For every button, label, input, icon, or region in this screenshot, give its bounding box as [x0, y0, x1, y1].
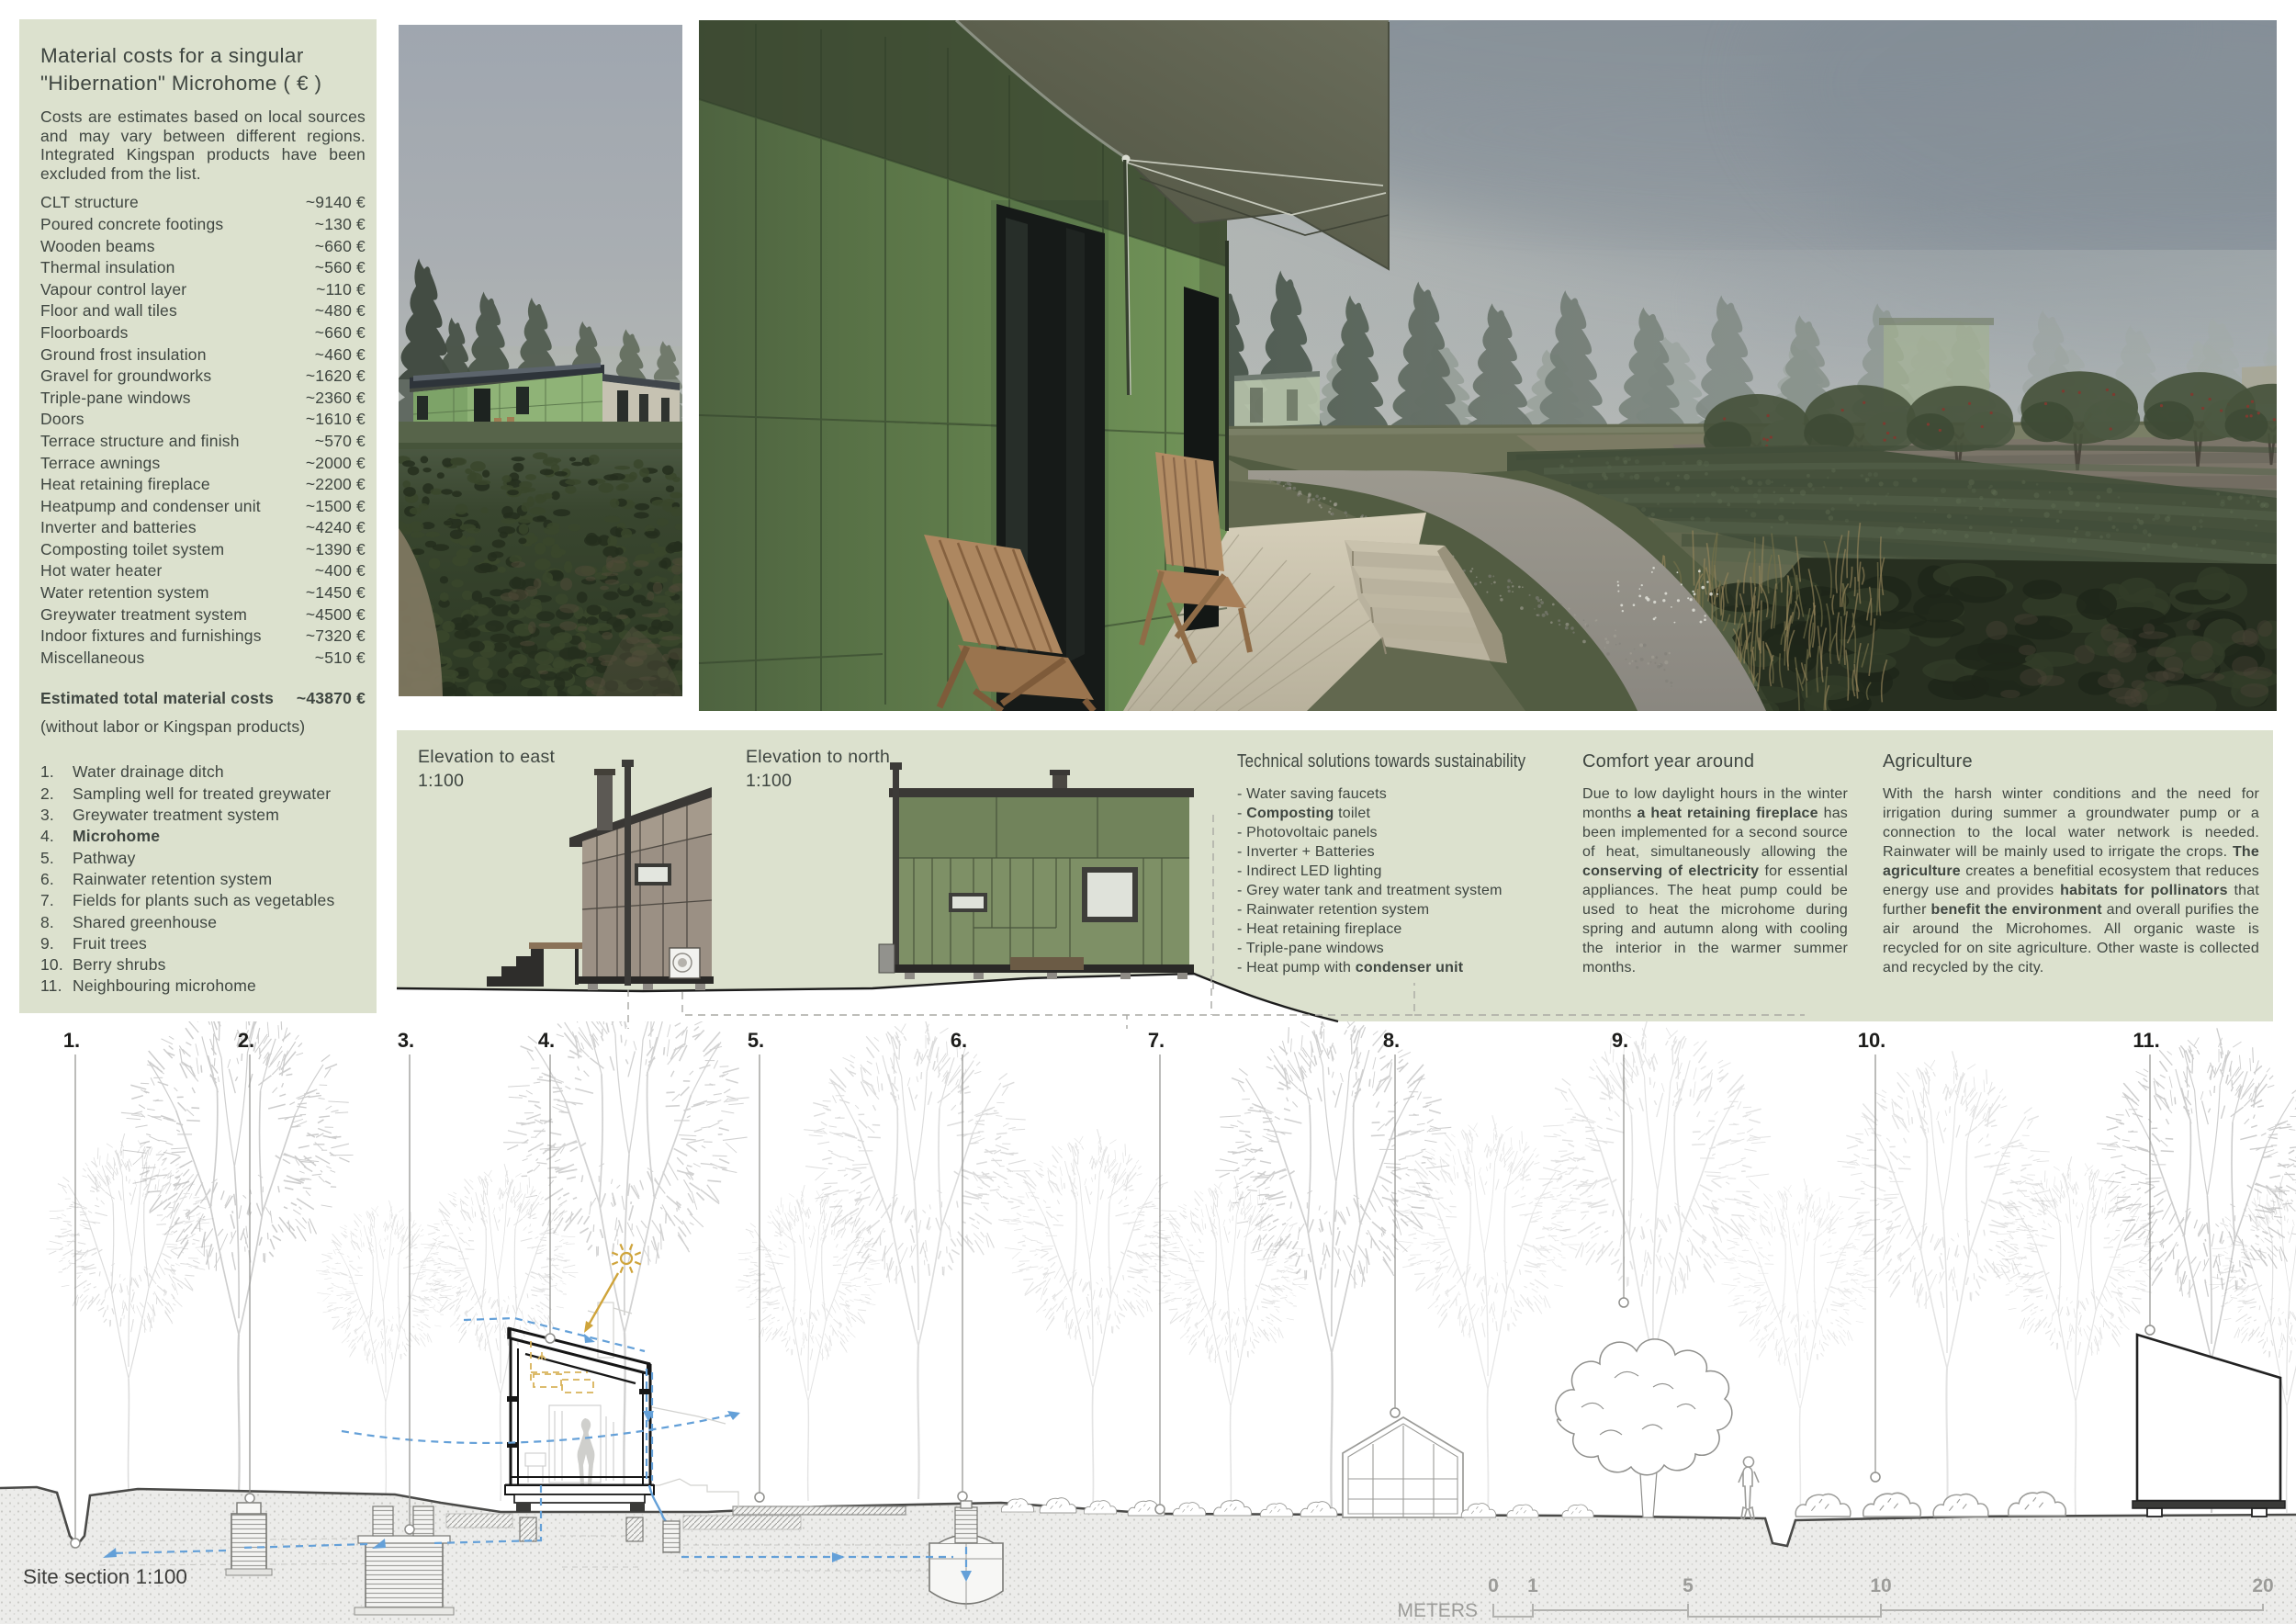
svg-text:3.: 3.	[398, 1029, 414, 1052]
svg-text:1.: 1.	[63, 1029, 80, 1052]
svg-text:2.: 2.	[238, 1029, 254, 1052]
svg-text:20: 20	[2252, 1575, 2273, 1596]
svg-text:11.: 11.	[2133, 1029, 2159, 1052]
svg-text:4.: 4.	[538, 1029, 555, 1052]
svg-text:6.: 6.	[951, 1029, 967, 1052]
svg-text:10: 10	[1870, 1575, 1891, 1596]
svg-text:8.: 8.	[1383, 1029, 1400, 1052]
svg-text:METERS: METERS	[1397, 1600, 1478, 1621]
svg-text:5.: 5.	[748, 1029, 764, 1052]
svg-text:Site section 1:100: Site section 1:100	[23, 1565, 187, 1588]
svg-text:7.: 7.	[1148, 1029, 1165, 1052]
svg-text:10.: 10.	[1858, 1029, 1886, 1052]
svg-text:9.: 9.	[1612, 1029, 1628, 1052]
svg-text:5: 5	[1683, 1575, 1694, 1596]
svg-text:0: 0	[1488, 1575, 1499, 1596]
svg-text:1: 1	[1527, 1575, 1538, 1596]
